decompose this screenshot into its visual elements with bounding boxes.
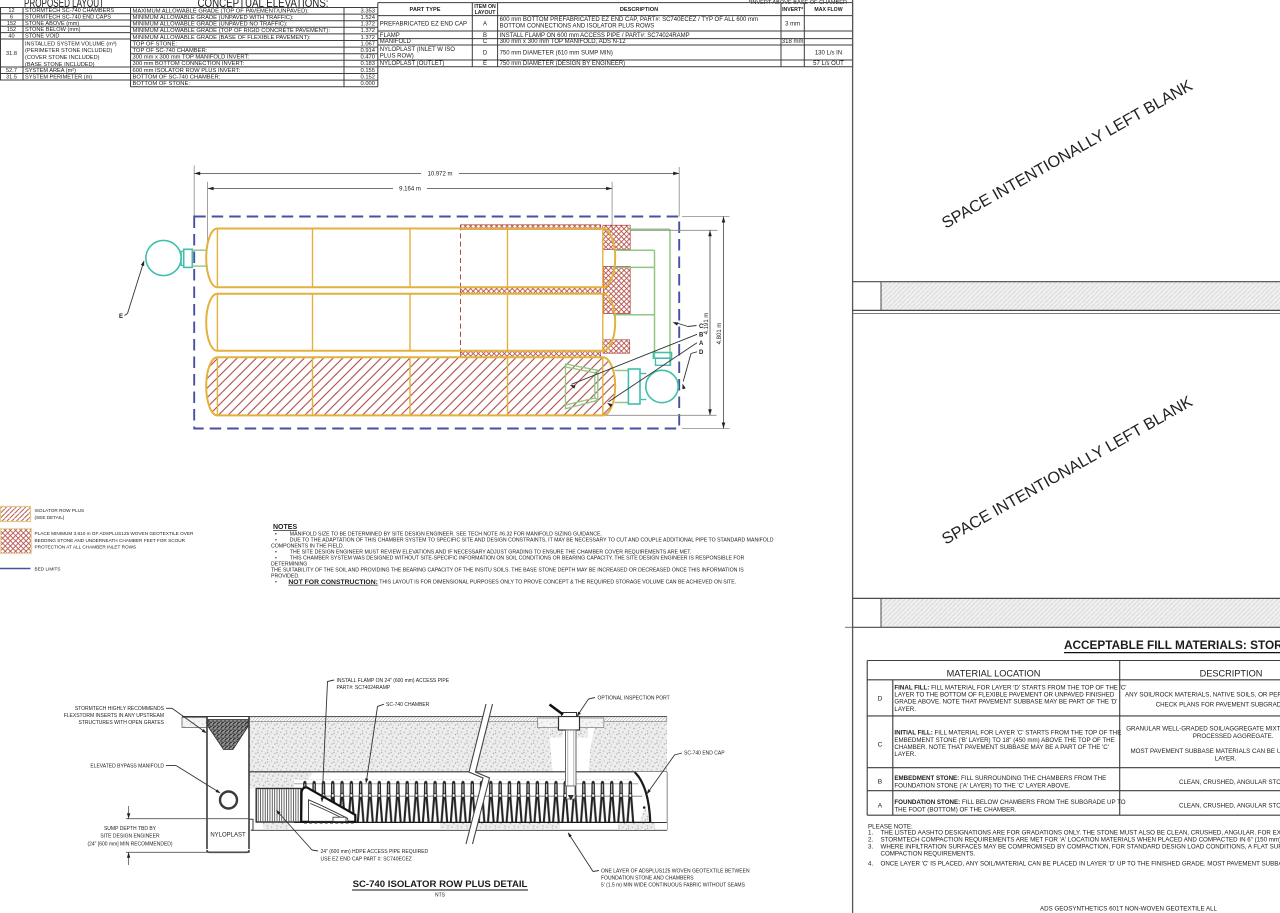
svg-text:FLAMP: FLAMP <box>380 33 400 39</box>
svg-text:C: C <box>878 742 883 749</box>
svg-text:FINAL FILL: FILL MATERIAL FOR: FINAL FILL: FILL MATERIAL FOR LAYER 'D' … <box>894 684 1126 691</box>
svg-text:ONE LAYER OF ADSPLUS125 WOVEN: ONE LAYER OF ADSPLUS125 WOVEN GEOTEXTILE… <box>601 868 750 874</box>
svg-text:PLUS ROW): PLUS ROW) <box>380 54 414 60</box>
svg-text:ISOLATOR ROW PLUS: ISOLATOR ROW PLUS <box>35 508 85 513</box>
svg-text:152: 152 <box>7 21 16 27</box>
svg-text:D: D <box>699 350 704 356</box>
svg-text:STONE BELOW (mm): STONE BELOW (mm) <box>25 27 81 33</box>
svg-text:MOST PAVEMENT SUBBASE MATERIAL: MOST PAVEMENT SUBBASE MATERIALS CAN BE U… <box>1131 748 1280 755</box>
svg-text:INITIAL FILL: FILL MATERIAL FO: INITIAL FILL: FILL MATERIAL FOR LAYER 'C… <box>894 730 1121 737</box>
svg-text:PART#: SC74024RAMP: PART#: SC74024RAMP <box>337 685 391 691</box>
svg-text:ADS GEOSYNTHETICS 601T NON-WOV: ADS GEOSYNTHETICS 601T NON-WOVEN GEOTEXT… <box>1040 906 1218 913</box>
svg-text:3.353: 3.353 <box>360 8 375 14</box>
svg-text:NOTES: NOTES <box>273 524 297 531</box>
svg-text:ELEVATED BYPASS MANIFOLD: ELEVATED BYPASS MANIFOLD <box>90 763 164 769</box>
svg-text:D: D <box>483 51 488 57</box>
svg-text:300 mm x 300 mm TOP MANIFOLD,: 300 mm x 300 mm TOP MANIFOLD, ADS N-12 <box>500 39 627 45</box>
svg-text:LAYER.: LAYER. <box>1215 756 1237 763</box>
svg-text:THE SUITABILITY OF THE SOIL AN: THE SUITABILITY OF THE SOIL AND PROVIDIN… <box>271 567 744 573</box>
svg-text:0.152: 0.152 <box>360 74 375 80</box>
svg-text:MANIFOLD: MANIFOLD <box>380 39 412 45</box>
svg-text:PROCESSED AGGREGATE.: PROCESSED AGGREGATE. <box>1193 733 1274 740</box>
svg-text:NYLOPLAST: NYLOPLAST <box>210 833 246 839</box>
svg-text:BED LIMITS: BED LIMITS <box>35 567 61 572</box>
svg-text:(SEE DETAIL): (SEE DETAIL) <box>35 515 65 520</box>
svg-text:MINIMUM ALLOWABLE GRADE (UNPAV: MINIMUM ALLOWABLE GRADE (UNPAVED NO TRAF… <box>133 22 288 28</box>
svg-text:1.067: 1.067 <box>360 41 375 47</box>
svg-text:A: A <box>699 341 704 347</box>
svg-text:52.7: 52.7 <box>6 68 17 74</box>
svg-text:152: 152 <box>7 27 16 33</box>
svg-text:1.524: 1.524 <box>360 15 375 21</box>
svg-text:10.972 m: 10.972 m <box>427 171 452 177</box>
svg-text:DESCRIPTION: DESCRIPTION <box>1200 669 1263 679</box>
svg-text:1.372: 1.372 <box>360 22 375 28</box>
svg-text:750 mm DIAMETER (DESIGN BY ENG: 750 mm DIAMETER (DESIGN BY ENGINEER) <box>500 61 626 67</box>
svg-text:*INVERT ABOVE BASE OF CHAMBER: *INVERT ABOVE BASE OF CHAMBER <box>749 0 847 6</box>
svg-text:DESCRIPTION: DESCRIPTION <box>620 7 658 13</box>
svg-text:BOTTOM CONNECTIONS AND ISOLATO: BOTTOM CONNECTIONS AND ISOLATOR PLUS ROW… <box>500 24 655 30</box>
svg-text:SC-740 ISOLATOR ROW PLUS DETAI: SC-740 ISOLATOR ROW PLUS DETAIL <box>353 879 528 890</box>
svg-text:STORMTECH HIGHLY RECOMMENDS: STORMTECH HIGHLY RECOMMENDS <box>75 706 165 712</box>
svg-text:CHAMBER. NOTE THAT PAVEMENT SU: CHAMBER. NOTE THAT PAVEMENT SUBBASE MAY … <box>894 744 1109 751</box>
svg-text:LAYER.: LAYER. <box>894 751 916 758</box>
svg-text:INVERT*: INVERT* <box>782 7 804 13</box>
svg-text:NYLOPLAST (INLET W ISO: NYLOPLAST (INLET W ISO <box>380 47 455 53</box>
svg-text:SC-740 CHAMBER: SC-740 CHAMBER <box>386 702 430 708</box>
svg-text:(PERIMETER STONE INCLUDED): (PERIMETER STONE INCLUDED) <box>25 48 112 54</box>
svg-text:24" (600 mm) HDPE ACCESS PIPE: 24" (600 mm) HDPE ACCESS PIPE REQUIRED <box>321 849 429 855</box>
svg-text:BEDDING STONE AND UNDERNEATH C: BEDDING STONE AND UNDERNEATH CHAMBER FEE… <box>35 538 186 543</box>
svg-text:GRADE ABOVE. NOTE THAT PAVEMEN: GRADE ABOVE. NOTE THAT PAVEMENT SUBBASE … <box>894 699 1117 706</box>
svg-text:MATERIAL LOCATION: MATERIAL LOCATION <box>947 669 1041 679</box>
svg-text:B: B <box>878 779 883 786</box>
svg-text:INSTALL FLAMP ON 600 mm ACCESS: INSTALL FLAMP ON 600 mm ACCESS PIPE / PA… <box>500 33 690 39</box>
svg-text:USE EZ END CAP PART #: SC740EC: USE EZ END CAP PART #: SC740ECEZ <box>321 857 412 863</box>
svg-text:4.: 4. <box>868 861 873 868</box>
svg-text:EMBEDMENT STONE: FILL SURROUND: EMBEDMENT STONE: FILL SURROUNDING THE CH… <box>894 775 1106 782</box>
svg-text:(24" [600 mm] MIN RECOMMENDED): (24" [600 mm] MIN RECOMMENDED) <box>87 841 172 847</box>
svg-text:INSTALLED SYSTEM VOLUME (m³): INSTALLED SYSTEM VOLUME (m³) <box>25 41 117 47</box>
svg-text:INSTALL FLAMP ON 24" (600 mm): INSTALL FLAMP ON 24" (600 mm) ACCESS PIP… <box>337 678 450 684</box>
svg-text:ONCE LAYER 'C' IS PLACED, ANY: ONCE LAYER 'C' IS PLACED, ANY SOIL/MATER… <box>881 861 1280 868</box>
svg-text:2.: 2. <box>868 836 873 843</box>
svg-text:TOP OF SC-740 CHAMBER:: TOP OF SC-740 CHAMBER: <box>133 48 208 54</box>
svg-text:D: D <box>878 696 883 703</box>
svg-text:TOP OF STONE:: TOP OF STONE: <box>133 41 178 47</box>
svg-text:NTS: NTS <box>435 893 446 899</box>
svg-text:ANY SOIL/ROCK MATERIALS, NATIV: ANY SOIL/ROCK MATERIALS, NATIVE SOILS, O… <box>1125 692 1280 699</box>
svg-text:0.470: 0.470 <box>360 55 375 61</box>
svg-text:PROTECTION AT ALL CHAMBER INLE: PROTECTION AT ALL CHAMBER INLET ROWS <box>35 544 137 549</box>
svg-text:40: 40 <box>8 33 14 39</box>
svg-text:STRUCTURES WITH OPEN GRATES: STRUCTURES WITH OPEN GRATES <box>79 720 165 726</box>
svg-text:STONE ABOVE (mm): STONE ABOVE (mm) <box>25 21 79 27</box>
svg-text:•: • <box>275 579 277 585</box>
svg-text:0.155: 0.155 <box>360 68 375 74</box>
svg-text:GRANULAR WELL-GRADED SOIL/AGGR: GRANULAR WELL-GRADED SOIL/AGGREGATE MIXT… <box>1126 726 1280 733</box>
svg-text:PART TYPE: PART TYPE <box>410 7 441 13</box>
svg-text:CLEAN, CRUSHED, ANGULAR STONE,: CLEAN, CRUSHED, ANGULAR STONE, NOMINAL S… <box>1179 779 1280 786</box>
svg-text:BOTTOM OF STONE:: BOTTOM OF STONE: <box>133 81 191 87</box>
svg-text:MINIMUM ALLOWABLE GRADE (TOP O: MINIMUM ALLOWABLE GRADE (TOP OF RIGID CO… <box>133 28 331 34</box>
svg-text:E: E <box>119 314 123 320</box>
svg-text:A: A <box>878 802 883 809</box>
svg-text:31.5: 31.5 <box>6 75 17 81</box>
svg-text:12: 12 <box>8 8 14 14</box>
svg-text:A: A <box>483 21 487 27</box>
svg-text:SC-740 END CAP: SC-740 END CAP <box>684 750 725 756</box>
svg-text:9.164 m: 9.164 m <box>399 187 421 193</box>
svg-text:31.8: 31.8 <box>6 51 17 57</box>
svg-text:STORMTECH SC-740 END CAPS: STORMTECH SC-740 END CAPS <box>25 15 111 21</box>
svg-text:B: B <box>483 33 487 39</box>
svg-text:5' (1.5 m) MIN WIDE CONTINUOUS: 5' (1.5 m) MIN WIDE CONTINUOUS FABRIC WI… <box>601 883 746 889</box>
svg-text:318 mm: 318 mm <box>782 39 804 45</box>
svg-text:LAYER.: LAYER. <box>894 706 916 713</box>
svg-text:BOTTOM OF SC-740 CHAMBER:: BOTTOM OF SC-740 CHAMBER: <box>133 74 221 80</box>
svg-text:PREFABRICATED EZ END CAP: PREFABRICATED EZ END CAP <box>380 21 467 27</box>
svg-text:FOUNDATION STONE ('A' LAYER) T: FOUNDATION STONE ('A' LAYER) TO THE 'C' … <box>894 782 1070 789</box>
svg-text:EMBEDMENT STONE ('B' LAYER) TO: EMBEDMENT STONE ('B' LAYER) TO 18" (450 … <box>894 737 1114 744</box>
svg-text:6: 6 <box>10 15 13 21</box>
svg-text:3.: 3. <box>868 844 873 851</box>
svg-text:FLEXSTORM INSERTS IN ANY UPSTR: FLEXSTORM INSERTS IN ANY UPSTREAM <box>64 713 164 719</box>
svg-text:(COVER STONE INCLUDED): (COVER STONE INCLUDED) <box>25 55 100 61</box>
svg-text:4.191 m: 4.191 m <box>704 313 710 335</box>
svg-text:PLACE MINIMUM 3.810 m OF ADSPL: PLACE MINIMUM 3.810 m OF ADSPLUS125 WOVE… <box>35 531 195 536</box>
svg-text:57 L/s OUT: 57 L/s OUT <box>813 61 844 67</box>
svg-text:STONE VOID: STONE VOID <box>25 33 59 39</box>
svg-text:MINIMUM ALLOWABLE GRADE (BASE: MINIMUM ALLOWABLE GRADE (BASE OF FLEXIBL… <box>133 35 311 41</box>
svg-text:SYSTEM AREA (m²): SYSTEM AREA (m²) <box>25 68 76 74</box>
svg-text:OPTIONAL INSPECTION PORT: OPTIONAL INSPECTION PORT <box>598 695 670 701</box>
svg-text:1.372: 1.372 <box>360 35 375 41</box>
svg-text:3 mm: 3 mm <box>785 21 800 27</box>
svg-text:SUMP DEPTH TBD BY: SUMP DEPTH TBD BY <box>104 826 157 832</box>
svg-text:C: C <box>483 39 488 45</box>
svg-text:0.183: 0.183 <box>360 61 375 67</box>
svg-text:ACCEPTABLE FILL MATERIALS: STO: ACCEPTABLE FILL MATERIALS: STORMTECH SC-… <box>1064 638 1280 652</box>
svg-text:4.801 m: 4.801 m <box>717 323 723 345</box>
svg-text:STORMTECH SC-740 CHAMBERS: STORMTECH SC-740 CHAMBERS <box>25 8 114 14</box>
svg-text:THE FOOT (BOTTOM) OF THE CHAMB: THE FOOT (BOTTOM) OF THE CHAMBER. <box>894 806 1016 813</box>
svg-text:1.372: 1.372 <box>360 28 375 34</box>
svg-text:FOUNDATION STONE: FILL BELOW C: FOUNDATION STONE: FILL BELOW CHAMBERS FR… <box>894 799 1125 806</box>
svg-text:E: E <box>483 61 487 67</box>
svg-text:MINIMUM ALLOWABLE GRADE (UNPAV: MINIMUM ALLOWABLE GRADE (UNPAVED WITH TR… <box>133 15 295 21</box>
svg-text:CLEAN, CRUSHED, ANGULAR STONE,: CLEAN, CRUSHED, ANGULAR STONE, NOMINAL S… <box>1179 802 1280 809</box>
svg-text:750 mm DIAMETER (610 mm SUMP M: 750 mm DIAMETER (610 mm SUMP MIN) <box>500 51 613 57</box>
svg-text:STORMTECH COMPACTION REQUIREME: STORMTECH COMPACTION REQUIREMENTS ARE ME… <box>881 836 1280 843</box>
svg-text:CHECK PLANS FOR PAVEMENT SUBGR: CHECK PLANS FOR PAVEMENT SUBGRADE REQUIR… <box>1156 702 1280 709</box>
svg-text:600 mm BOTTOM PREFABRICATED EZ: 600 mm BOTTOM PREFABRICATED EZ END CAP, … <box>500 17 758 23</box>
svg-text:THIS CHAMBER SYSTEM WAS DESIGN: THIS CHAMBER SYSTEM WAS DESIGNED WITHOUT… <box>290 555 745 561</box>
svg-text:600 mm ISOLATOR ROW PLUS INVER: 600 mm ISOLATOR ROW PLUS INVERT: <box>133 68 241 74</box>
svg-text:LAYER TO THE BOTTOM OF FLEXIBL: LAYER TO THE BOTTOM OF FLEXIBLE PAVEMENT… <box>894 692 1114 699</box>
svg-text:DUE TO THE ADAPTATION OF THIS: DUE TO THE ADAPTATION OF THIS CHAMBER SY… <box>290 537 774 543</box>
svg-text:SITE DESIGN ENGINEER: SITE DESIGN ENGINEER <box>100 834 160 840</box>
svg-text:FOUNDATION STONE AND CHAMBERS: FOUNDATION STONE AND CHAMBERS <box>601 875 694 881</box>
svg-text:0.914: 0.914 <box>360 48 375 54</box>
svg-text:130 L/s IN: 130 L/s IN <box>815 51 842 57</box>
svg-text:0.000: 0.000 <box>360 81 375 87</box>
svg-text:COMPACTION REQUIREMENTS.: COMPACTION REQUIREMENTS. <box>881 850 976 857</box>
svg-text:MAX FLOW: MAX FLOW <box>814 7 842 13</box>
svg-text:300 mm BOTTOM CONNECTION INVER: 300 mm BOTTOM CONNECTION INVERT: <box>133 61 245 67</box>
svg-text:NOT FOR CONSTRUCTION: THIS LAY: NOT FOR CONSTRUCTION: THIS LAYOUT IS FOR… <box>288 579 736 586</box>
svg-text:LAYOUT: LAYOUT <box>475 10 497 16</box>
svg-text:SYSTEM PERIMETER (m): SYSTEM PERIMETER (m) <box>25 75 92 81</box>
svg-text:300 mm x 300 mm TOP MANIFOLD I: 300 mm x 300 mm TOP MANIFOLD INVERT: <box>133 55 250 61</box>
svg-text:MAXIMUM ALLOWABLE GRADE (TOP O: MAXIMUM ALLOWABLE GRADE (TOP OF PAVEMENT… <box>133 8 310 14</box>
svg-text:NYLOPLAST (OUTLET): NYLOPLAST (OUTLET) <box>380 61 445 67</box>
